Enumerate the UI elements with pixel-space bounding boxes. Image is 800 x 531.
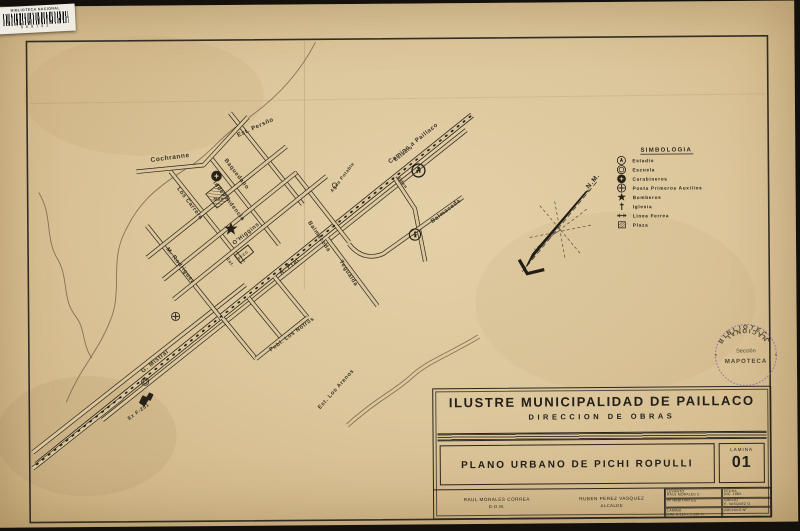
- department-subtitle: DIRECCION DE OBRAS: [433, 411, 770, 423]
- municipality-title: ILUSTRE MUNICIPALIDAD DE PAILLACO: [433, 387, 770, 411]
- stamp-mapoteca-text: MAPOTECA: [725, 359, 767, 365]
- stream-path: [39, 192, 92, 358]
- street-network: [30, 111, 475, 468]
- meta-label: Nº HABITANTES: [667, 499, 720, 503]
- meta-cell-lamina: LAMINA DIM. 0.315 x 1.195 m.: [665, 508, 722, 518]
- legend-item-label: Posta Primeros Auxilios: [633, 185, 703, 191]
- meta-value: DIC. 1983: [724, 493, 769, 497]
- meta-label: ARCHIVO Nº: [724, 509, 769, 513]
- church-icon: [620, 203, 624, 210]
- north-label: N.M.: [585, 172, 602, 190]
- author-role: D.O.M.: [434, 503, 559, 509]
- legend-item-label: Linea Ferrea: [633, 213, 669, 218]
- legend-title: SIMBOLOGIA: [640, 147, 692, 153]
- meta-value: RAUL MORALES C.: [667, 493, 720, 497]
- legend-item: Carabineros: [617, 174, 667, 183]
- school-icon: [617, 165, 625, 173]
- stamp-section-text: Sección: [736, 348, 756, 354]
- street-casing: [395, 177, 426, 261]
- sheet-number-box: LAMINA 01: [719, 443, 765, 483]
- street-label: FFCC: [237, 250, 249, 261]
- meta-value: E. VASQUEZ G.: [724, 503, 769, 507]
- author-name: RAUL MORALES CORREA: [434, 496, 559, 502]
- legend-item-label: Escuela: [632, 167, 655, 172]
- approver-role: ALCALDE: [560, 502, 665, 508]
- street-fill: [34, 115, 475, 464]
- legend-item: Escuela: [617, 165, 655, 173]
- street-label: Est.: [225, 256, 236, 268]
- street-casing: [349, 197, 463, 256]
- street-fill: [349, 197, 463, 256]
- stamp-star-right: *: [775, 354, 778, 360]
- title-block-header: ILUSTRE MUNICIPALIDAD DE PAILLACO DIRECC…: [433, 387, 770, 434]
- legend-item: Posta Primeros Auxilios: [617, 183, 702, 192]
- metadata-grid: LEVANTO RAUL MORALES C. FECHA DIC. 1983 …: [664, 488, 771, 518]
- street-label: Balmaceda: [430, 198, 462, 225]
- street-fill: [274, 276, 307, 317]
- legend-item: Estadio: [617, 156, 654, 164]
- street-label: Los Carrera: [175, 186, 204, 221]
- legend-item-label: Estadio: [632, 158, 654, 163]
- legend-item-label: Bomberos: [633, 195, 662, 200]
- first-aid-icon: [171, 312, 179, 320]
- street-label: Pobl. Los Notros: [269, 316, 316, 353]
- legend-item-label: Plaza: [633, 223, 649, 228]
- legend-item-label: Iglesia: [633, 204, 653, 209]
- street-label: Est. Los Arenos: [317, 368, 356, 410]
- title-block: ILUSTRE MUNICIPALIDAD DE PAILLACO DIRECC…: [432, 386, 772, 520]
- meta-cell-archivo: ARCHIVO Nº: [722, 507, 771, 517]
- street-label: Agua Potable: [329, 161, 355, 193]
- meta-cell-levanto: LEVANTO RAUL MORALES C.: [665, 488, 722, 498]
- author-signature: RAUL MORALES CORREA D.O.M.: [434, 489, 560, 519]
- plan-title: PLANO URBANO DE PICHI ROPULLI: [440, 443, 715, 485]
- barcode-sticker: BIBLIOTECA NACIONAL 989792: [0, 3, 76, 34]
- sheet-number: 01: [720, 454, 764, 472]
- title-block-footer: RAUL MORALES CORREA D.O.M. RUBEN PEREZ V…: [434, 487, 771, 520]
- street-fill: [223, 318, 256, 359]
- approver-signature: RUBEN PEREZ VASQUEZ ALCALDE: [559, 489, 664, 519]
- legend-item-label: Carabineros: [633, 176, 668, 181]
- scanned-map-screenshot: { "colors": {"paper":"#dcc69b","ink":"#2…: [0, 0, 800, 531]
- street-fill: [248, 298, 281, 339]
- sheet-label: LAMINA: [720, 447, 764, 452]
- street-label: Mun: [213, 196, 223, 201]
- legend-item: Bomberos: [617, 193, 661, 201]
- legend-item: Iglesia: [620, 202, 652, 210]
- first-aid-icon: [617, 184, 625, 192]
- title-block-middle: PLANO URBANO DE PICHI ROPULLI LAMINA 01: [434, 439, 771, 490]
- carabineros-icon: [617, 174, 626, 183]
- stadium-icon: [617, 156, 625, 164]
- meta-cell-habitantes: Nº HABITANTES: [665, 498, 722, 508]
- fire-station-icon: [617, 193, 625, 201]
- meta-cell-dibujo: DIBUJO E. VASQUEZ G.: [722, 497, 771, 507]
- street-label: M. Rodriguez: [164, 247, 195, 285]
- map-sheet-paper: CochranneEst. PersñoCamino a PaillacoAgu…: [0, 1, 798, 528]
- approver-name: RUBEN PEREZ VASQUEZ: [559, 496, 664, 502]
- meta-cell-fecha: FECHA DIC. 1983: [722, 488, 771, 498]
- meta-value: DIM. 0.315 x 1.195 m.: [667, 513, 720, 517]
